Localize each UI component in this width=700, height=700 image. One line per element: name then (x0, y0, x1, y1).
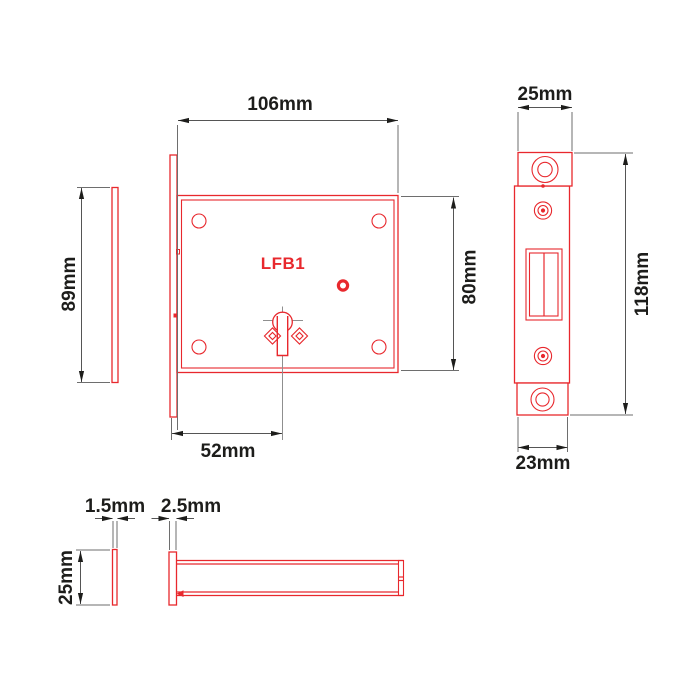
product-code-label: LFB1 (261, 254, 306, 273)
arrowhead-down (623, 403, 628, 414)
case-front-view: LFB1 (170, 155, 398, 440)
arrowhead-right (561, 105, 572, 110)
dimension-label: 52mm (201, 441, 256, 462)
forend-front-view (515, 153, 573, 416)
arrowhead-right (271, 431, 282, 436)
dimension-strike-plate-thickness: 1.5mm (85, 496, 145, 548)
dimension-label: 118mm (632, 252, 653, 316)
arrowhead-left (178, 118, 189, 123)
dimension-label: 2.5mm (161, 496, 221, 517)
dimension-label: 80mm (460, 250, 481, 305)
strike-plate-edge-view (113, 550, 118, 606)
dimension-label: 106mm (247, 94, 313, 115)
lock-technical-drawing: LFB1 (0, 0, 700, 700)
forend-lower-screw-center (541, 354, 545, 358)
arrowhead-left (172, 431, 183, 436)
arrowhead-up (78, 551, 83, 562)
faceplate-dot (174, 314, 178, 318)
dimension-strike-plate-height: 89mm (59, 188, 110, 383)
arrowhead-left (518, 445, 529, 450)
dimension-label: 89mm (59, 257, 80, 312)
arrowhead-up (451, 198, 456, 209)
case-rear-cap (399, 561, 404, 596)
dimension-forend-bottom-width: 23mm (516, 417, 571, 474)
arrowhead-up (79, 188, 84, 199)
arrowhead-down (79, 371, 84, 382)
technical-drawing-page: LFB1 (0, 0, 700, 700)
arrowhead-left (518, 105, 529, 110)
dimension-label: 25mm (518, 84, 573, 105)
case-top-view (169, 552, 404, 605)
arrowhead-down (78, 593, 83, 604)
dimension-forend-height: 118mm (570, 153, 653, 415)
dimension-label: 25mm (56, 550, 77, 605)
strike-plate-side-view (112, 188, 118, 383)
dimension-forend-thickness: 2.5mm (152, 496, 222, 550)
faceplate-strip (170, 155, 177, 417)
forend-top-tab (518, 153, 572, 187)
dimension-forend-width: 25mm (518, 84, 573, 151)
strike-plate-strip (112, 188, 118, 383)
forend-upper-screw-center (541, 208, 545, 212)
dimension-case-depth: 25mm (56, 550, 110, 605)
strike-plate-edge (113, 550, 118, 606)
forend-edge-strip (169, 552, 177, 605)
arrowhead-right (387, 118, 398, 123)
keyhole-slot (277, 316, 287, 356)
dimension-label: 1.5mm (85, 496, 145, 517)
arrowhead-down (451, 359, 456, 370)
dimension-label: 23mm (516, 453, 571, 474)
arrowhead-right (557, 445, 568, 450)
arrowhead-up (623, 154, 628, 165)
junction-dot (541, 184, 545, 188)
dimension-keyhole-backset: 52mm (172, 418, 283, 462)
dimension-case-height: 80mm (401, 197, 481, 371)
